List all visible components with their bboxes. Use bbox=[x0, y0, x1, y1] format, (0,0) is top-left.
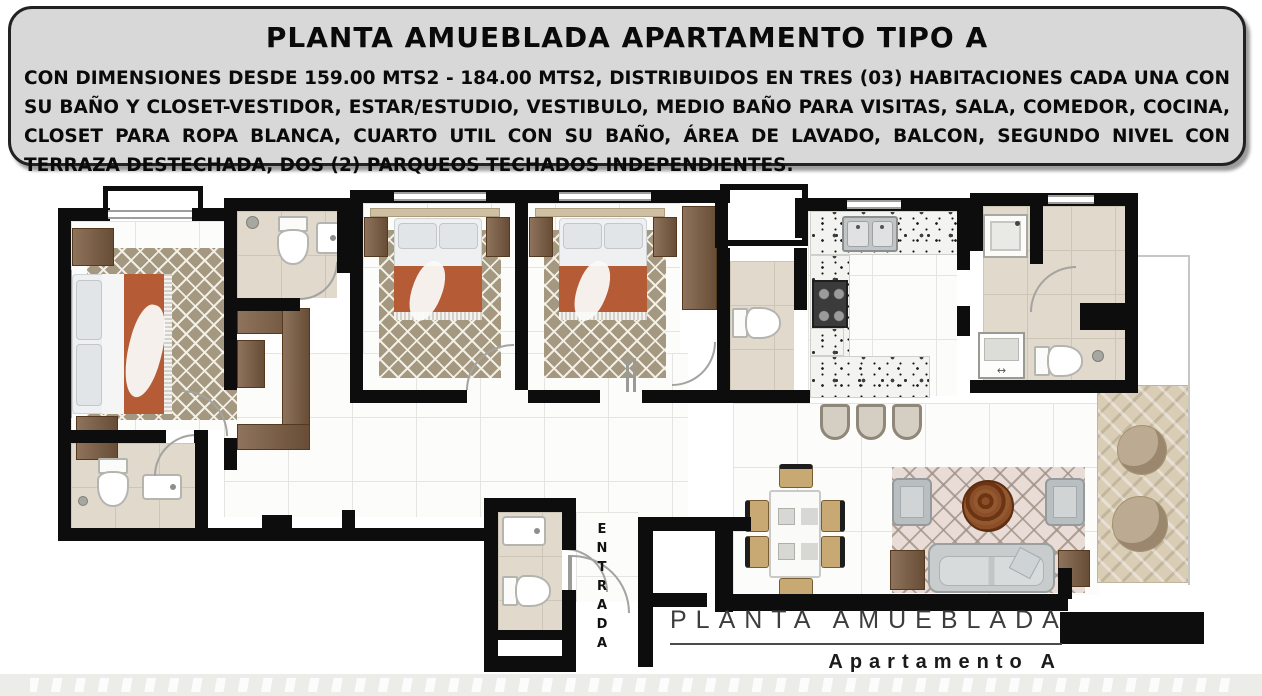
shower-icon: ↔ bbox=[978, 332, 1025, 379]
nightstand bbox=[486, 217, 510, 257]
wall bbox=[653, 593, 707, 607]
wardrobe bbox=[682, 206, 717, 310]
terrace-boundary-line-v bbox=[1188, 255, 1190, 585]
toilet-icon bbox=[276, 216, 306, 262]
blanket-fringe bbox=[164, 274, 172, 414]
wall bbox=[638, 517, 751, 531]
bed-headboard bbox=[535, 208, 665, 217]
toilet-icon bbox=[96, 458, 126, 504]
window bbox=[108, 210, 192, 219]
wall bbox=[58, 528, 488, 541]
walkin-closet-shelf bbox=[237, 340, 265, 388]
watermark-band bbox=[0, 674, 1262, 696]
pillow bbox=[76, 280, 102, 340]
wall bbox=[342, 510, 355, 541]
kitchen-island bbox=[810, 356, 930, 398]
wall bbox=[957, 198, 970, 270]
kitchen-counter-corner bbox=[810, 328, 844, 356]
wall bbox=[71, 430, 166, 443]
drain-icon bbox=[78, 496, 88, 506]
walkin-closet-shelf bbox=[237, 424, 310, 450]
window bbox=[559, 192, 651, 201]
wall bbox=[970, 380, 1138, 393]
plan-caption-title: PLANTA AMUEBLADA bbox=[670, 606, 1062, 645]
wall bbox=[58, 208, 71, 541]
toilet-icon bbox=[732, 310, 778, 340]
plan-caption-subtitle: Apartamento A bbox=[670, 651, 1062, 674]
wall bbox=[337, 198, 350, 273]
door-leaf bbox=[633, 358, 636, 392]
wall bbox=[715, 517, 733, 612]
wall bbox=[715, 190, 728, 248]
wall-niche bbox=[498, 640, 562, 656]
window bbox=[394, 192, 486, 201]
nightstand bbox=[364, 217, 388, 257]
entrance-label: ENTRADA bbox=[593, 520, 611, 653]
dining-chair-icon bbox=[821, 536, 845, 568]
terrace-boundary-line-h bbox=[1138, 255, 1190, 257]
armchair-icon bbox=[1045, 478, 1085, 526]
wall bbox=[1030, 206, 1043, 264]
floor-plan: ↔ bbox=[42, 178, 1198, 678]
wall bbox=[794, 248, 807, 310]
header-panel: PLANTA AMUEBLADA APARTAMENTO TIPO A CON … bbox=[8, 6, 1246, 166]
drain-icon bbox=[1092, 350, 1104, 362]
stove-icon bbox=[812, 280, 848, 328]
window bbox=[1048, 195, 1094, 204]
wall bbox=[957, 306, 970, 336]
shower-head-icon bbox=[246, 216, 259, 229]
bathroom-sink-icon bbox=[502, 516, 546, 546]
wall bbox=[357, 390, 467, 403]
washer-icon bbox=[983, 214, 1028, 258]
pillow bbox=[604, 223, 643, 249]
bed-headboard bbox=[370, 208, 500, 217]
floor-plan-page: PLANTA AMUEBLADA APARTAMENTO TIPO A CON … bbox=[0, 0, 1262, 696]
wall bbox=[195, 430, 208, 541]
side-table bbox=[890, 550, 925, 590]
pillow bbox=[563, 223, 602, 249]
bed-sheet bbox=[102, 274, 124, 414]
wall bbox=[262, 515, 292, 528]
wall-notch bbox=[1068, 599, 1093, 611]
wall bbox=[350, 190, 363, 403]
wall bbox=[970, 206, 983, 251]
blanket-fringe bbox=[559, 312, 647, 320]
bar-stool-icon bbox=[892, 404, 922, 440]
bathroom-sink-icon bbox=[142, 474, 182, 500]
nightstand bbox=[72, 228, 114, 266]
coffee-table-icon bbox=[962, 480, 1014, 532]
pillow bbox=[76, 344, 102, 406]
wall bbox=[638, 517, 653, 667]
blanket-fringe bbox=[394, 312, 482, 320]
wall bbox=[528, 390, 600, 403]
armchair-icon bbox=[892, 478, 932, 526]
wall bbox=[515, 190, 528, 390]
window bbox=[847, 200, 901, 209]
hanging-chair-icon bbox=[1117, 425, 1167, 475]
pillow bbox=[439, 223, 478, 249]
toilet-icon bbox=[1034, 348, 1080, 378]
dining-chair-icon bbox=[779, 464, 813, 488]
wall bbox=[224, 438, 237, 470]
dining-table-icon bbox=[769, 490, 821, 578]
page-title: PLANTA AMUEBLADA APARTAMENTO TIPO A bbox=[11, 21, 1243, 54]
wall bbox=[237, 298, 300, 311]
description-text: CON DIMENSIONES DESDE 159.00 MTS2 - 184.… bbox=[11, 64, 1243, 180]
door-leaf bbox=[626, 358, 629, 392]
sink-basin bbox=[872, 221, 894, 247]
wall bbox=[224, 198, 350, 211]
kitchen-sink-icon bbox=[842, 216, 898, 252]
dining-chair-icon bbox=[821, 500, 845, 532]
toilet-icon bbox=[502, 578, 548, 608]
wall bbox=[1080, 303, 1138, 330]
wall bbox=[1125, 193, 1138, 393]
wall bbox=[224, 198, 237, 390]
sofa-icon bbox=[928, 543, 1055, 593]
wall bbox=[562, 498, 576, 550]
dining-chair-icon bbox=[745, 536, 769, 568]
wall bbox=[58, 208, 110, 221]
plan-caption: PLANTA AMUEBLADA Apartamento A bbox=[670, 606, 1062, 674]
door-arc bbox=[672, 342, 716, 386]
wall bbox=[1060, 612, 1204, 644]
wall bbox=[795, 198, 808, 238]
sink-basin bbox=[847, 221, 869, 247]
nightstand bbox=[529, 217, 553, 257]
bedroom1-balcony-box bbox=[103, 186, 203, 212]
wall bbox=[562, 590, 576, 630]
nightstand bbox=[653, 217, 677, 257]
hanging-chair-icon bbox=[1112, 496, 1168, 552]
terrace-wood-floor bbox=[1097, 385, 1189, 583]
bar-stool-icon bbox=[820, 404, 850, 440]
bar-stool-icon bbox=[856, 404, 886, 440]
pillow bbox=[398, 223, 437, 249]
wall bbox=[717, 248, 730, 393]
